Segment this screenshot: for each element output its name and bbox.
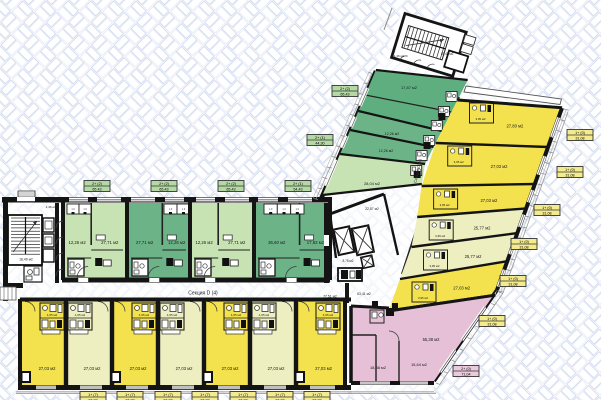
svg-text:1+ (7): 1+ (7): [238, 393, 248, 397]
svg-text:4,46 м2: 4,46 м2: [394, 54, 405, 58]
svg-text:27,03 м2: 27,03 м2: [491, 164, 509, 169]
svg-text:31,08: 31,08: [487, 323, 496, 327]
svg-text:3,95 м2: 3,95 м2: [418, 296, 428, 300]
svg-text:Секция D (4): Секция D (4): [188, 291, 218, 297]
svg-text:12,26 м2: 12,26 м2: [168, 240, 186, 245]
svg-text:12,26 м2: 12,26 м2: [68, 240, 86, 245]
svg-text:71,04: 71,04: [461, 373, 470, 377]
svg-text:27,03 м2: 27,03 м2: [176, 366, 194, 371]
svg-text:27,03 м2: 27,03 м2: [130, 366, 148, 371]
svg-text:4,95 м2: 4,95 м2: [167, 313, 178, 317]
svg-text:65,43: 65,43: [226, 188, 235, 192]
svg-text:2+ (2): 2+ (2): [226, 182, 236, 186]
svg-text:27,03 м2: 27,03 м2: [39, 366, 57, 371]
svg-text:27,03 м2: 27,03 м2: [453, 286, 471, 291]
svg-text:12,26 м2: 12,26 м2: [385, 132, 399, 136]
svg-text:8,75 м2: 8,75 м2: [342, 259, 353, 263]
svg-text:4,95 м2: 4,95 м2: [259, 313, 270, 317]
svg-text:1+ (0): 1+ (0): [487, 317, 497, 321]
svg-text:4,95 м2: 4,95 м2: [231, 313, 242, 317]
svg-text:27,80 м2: 27,80 м2: [506, 123, 524, 128]
svg-text:3,95 м2: 3,95 м2: [475, 117, 485, 121]
svg-text:27,03 м2: 27,03 м2: [480, 198, 498, 203]
svg-text:15,64 м2: 15,64 м2: [411, 362, 428, 367]
svg-text:55,38 м2: 55,38 м2: [423, 337, 441, 342]
svg-text:31,08: 31,08: [565, 174, 574, 178]
svg-text:17,87 м2: 17,87 м2: [401, 85, 418, 90]
svg-text:1+ (7): 1+ (7): [163, 393, 173, 397]
svg-text:31,08: 31,08: [575, 137, 584, 141]
svg-text:27,03 м2: 27,03 м2: [222, 366, 240, 371]
svg-text:65,43: 65,43: [92, 188, 101, 192]
svg-text:17,83 м2: 17,83 м2: [307, 240, 325, 245]
svg-text:3,95 м2: 3,95 м2: [429, 264, 439, 268]
svg-text:27,03 м2: 27,03 м2: [84, 366, 102, 371]
svg-text:3,95 м2: 3,95 м2: [454, 160, 464, 164]
svg-text:4,95 м2: 4,95 м2: [323, 313, 334, 317]
svg-text:1+ (7): 1+ (7): [200, 393, 210, 397]
svg-text:4,95 м2: 4,95 м2: [139, 313, 150, 317]
svg-text:3,95 м2: 3,95 м2: [440, 203, 450, 207]
svg-text:1+ (0): 1+ (0): [575, 131, 585, 135]
svg-text:63,41 м2: 63,41 м2: [357, 292, 371, 296]
svg-text:2+ (1): 2+ (1): [315, 136, 325, 140]
svg-text:25,77 м2: 25,77 м2: [465, 254, 483, 259]
svg-text:44,30: 44,30: [315, 142, 324, 146]
svg-text:2+ (2): 2+ (2): [159, 182, 169, 186]
svg-text:27,71 м2: 27,71 м2: [228, 240, 246, 245]
svg-text:36,60 м2: 36,60 м2: [268, 240, 286, 245]
svg-text:3,95 м2: 3,95 м2: [435, 234, 445, 238]
svg-text:65,43: 65,43: [340, 93, 349, 97]
svg-text:1+ (0): 1+ (0): [508, 277, 518, 281]
svg-text:1+ (0): 1+ (0): [542, 206, 552, 210]
svg-text:27,71 м2: 27,71 м2: [101, 240, 119, 245]
svg-text:2+ (0): 2+ (0): [461, 367, 471, 371]
svg-text:25,77 м2: 25,77 м2: [474, 225, 492, 230]
svg-text:2+ (2): 2+ (2): [340, 87, 350, 91]
svg-text:65,43: 65,43: [159, 188, 168, 192]
svg-text:18,88 м2: 18,88 м2: [370, 365, 387, 370]
svg-text:22,87 м2: 22,87 м2: [365, 207, 379, 211]
svg-text:4,46 м2: 4,46 м2: [46, 205, 57, 209]
svg-text:27,71 м2: 27,71 м2: [136, 240, 154, 245]
svg-text:12,26 м2: 12,26 м2: [379, 149, 393, 153]
svg-text:1+ (7): 1+ (7): [88, 393, 98, 397]
svg-text:2+ (2): 2+ (2): [92, 182, 102, 186]
svg-text:1+ (7): 1+ (7): [125, 393, 135, 397]
svg-text:12,26 м2: 12,26 м2: [195, 240, 213, 245]
svg-text:31,08: 31,08: [542, 212, 551, 216]
svg-text:1+ (7): 1+ (7): [312, 393, 322, 397]
svg-text:18,49 м2: 18,49 м2: [19, 258, 33, 262]
svg-text:1+ (0): 1+ (0): [519, 240, 529, 244]
svg-text:31,08: 31,08: [519, 246, 528, 250]
svg-text:28,04 м2: 28,04 м2: [364, 181, 381, 186]
svg-text:18,48 м2: 18,48 м2: [441, 52, 454, 56]
svg-text:27,03 м2: 27,03 м2: [315, 366, 333, 371]
svg-text:1+ (0): 1+ (0): [565, 168, 575, 172]
svg-text:27,03 м2: 27,03 м2: [268, 366, 286, 371]
svg-text:4,95 м2: 4,95 м2: [75, 313, 86, 317]
svg-text:2+ (1): 2+ (1): [293, 182, 303, 186]
svg-text:54,43: 54,43: [293, 188, 302, 192]
svg-text:1+ (7): 1+ (7): [275, 393, 285, 397]
svg-text:31,08: 31,08: [508, 283, 517, 287]
svg-text:4,95 м2: 4,95 м2: [47, 313, 58, 317]
